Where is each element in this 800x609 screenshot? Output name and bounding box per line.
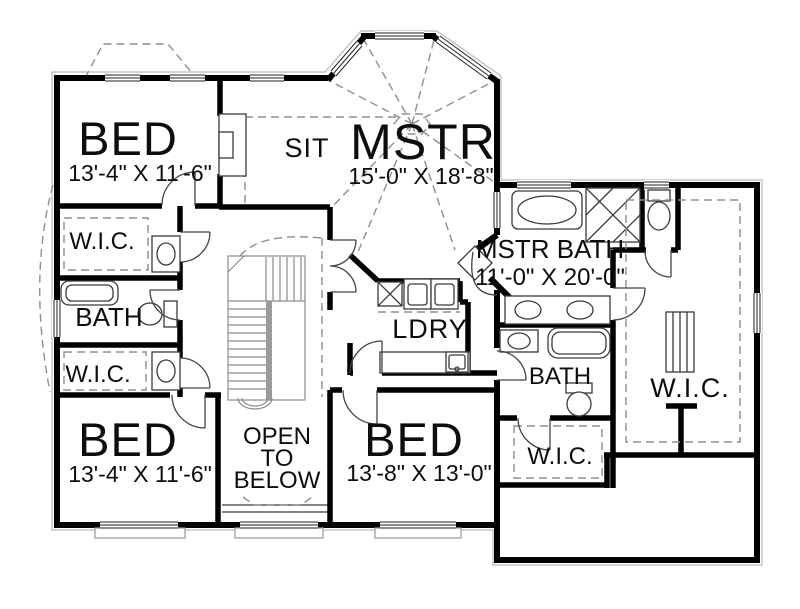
room-label-sit: SIT — [284, 133, 329, 163]
room-label-wic-bottom-right: W.I.C. — [527, 443, 592, 470]
chimney-chase-icon — [666, 312, 694, 372]
window — [100, 520, 178, 530]
window — [492, 192, 502, 228]
window — [105, 73, 140, 83]
room-label-bath-right: BATH — [529, 363, 591, 390]
sink-icon — [152, 236, 180, 272]
window — [250, 73, 284, 83]
window — [375, 31, 424, 41]
window — [240, 520, 318, 530]
room-label-master: MSTR — [350, 114, 496, 170]
room-dims-bed-bottom-middle: 13'-8" X 13'-0" — [346, 460, 491, 486]
window-bay-left — [331, 41, 362, 76]
room-label-master-bath: MSTR BATH — [476, 234, 624, 264]
window — [380, 520, 456, 530]
room-dims-bed-bottom-left: 13'-4" X 11'-6" — [68, 461, 212, 487]
toilet-icon — [648, 190, 670, 230]
room-label-bed-bottom-middle: BED — [364, 413, 464, 466]
stair-rail-wall — [266, 301, 272, 400]
window — [517, 180, 571, 190]
window — [752, 293, 762, 333]
room-label-wic-lower-left: W.I.C. — [65, 361, 130, 388]
laundry-sink-icon — [380, 352, 470, 373]
dryer-icon — [431, 279, 458, 309]
open-to-below-railing — [222, 497, 330, 512]
floor-plan-page: BED 13'-4" X 11'-6" SIT MSTR 15'-0" X 18… — [0, 0, 800, 609]
window-bay-right — [436, 36, 491, 79]
staircase — [228, 237, 322, 409]
room-label-open-to-below-3: BELOW — [234, 467, 321, 494]
room-label-wic-upper-left: W.I.C. — [69, 228, 134, 255]
room-label-laundry: LDRY — [392, 314, 468, 344]
room-label-wic-right: W.I.C. — [650, 373, 730, 403]
sink-icon — [152, 352, 180, 390]
laundry-chute-icon — [378, 282, 402, 306]
room-label-bed-top-left: BED — [78, 112, 178, 165]
room-dims-bed-top-left: 13'-4" X 11'-6" — [68, 160, 212, 186]
window — [52, 300, 62, 337]
room-dims-master-bath: 11'-0" X 20'-0" — [475, 264, 625, 291]
garden-tub-icon — [512, 191, 582, 229]
fireplace-icon — [219, 114, 246, 176]
washer-icon — [404, 279, 431, 309]
sink-icon — [500, 330, 538, 352]
double-vanity-icon — [505, 296, 610, 324]
room-label-bed-bottom-left: BED — [78, 413, 178, 466]
floor-plan-svg: BED 13'-4" X 11'-6" SIT MSTR 15'-0" X 18… — [0, 0, 800, 609]
room-label-bath-left: BATH — [75, 302, 142, 332]
room-dims-master: 15'-0" X 18'-8" — [348, 163, 493, 189]
window — [644, 180, 669, 190]
window — [170, 73, 205, 83]
toilet-icon — [138, 301, 177, 327]
bathtub-icon — [548, 328, 610, 358]
